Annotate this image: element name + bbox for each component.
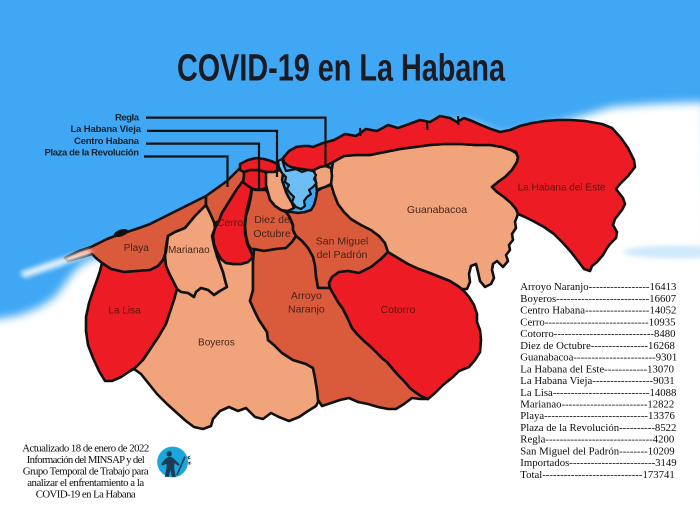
svg-text:Actualizado 18 de enero de 202: Actualizado 18 de enero de 2022 — [22, 443, 149, 455]
svg-text:La Habana del Este: La Habana del Este — [518, 182, 606, 193]
svg-text:Playa: Playa — [124, 243, 149, 254]
svg-text:La Habana Vieja: La Habana Vieja — [71, 124, 142, 135]
svg-text:Regla-------------------------: Regla------------------------------4200 — [520, 434, 674, 446]
svg-text:Boyeros: Boyeros — [198, 338, 235, 349]
svg-text:Naranjo: Naranjo — [288, 304, 325, 316]
svg-text:Diez de: Diez de — [254, 214, 290, 226]
svg-text:Plaza de la Revolución--------: Plaza de la Revolución----------8522 — [520, 422, 676, 434]
svg-text:Cotorro: Cotorro — [380, 304, 415, 316]
svg-text:La Lisa: La Lisa — [108, 306, 141, 317]
svg-text:San Miguel del Padrón--------1: San Miguel del Padrón--------10209 — [520, 445, 674, 457]
svg-text:Cerro-------------------------: Cerro-----------------------------10935 — [520, 316, 675, 328]
svg-text:La Habana del Este------------: La Habana del Este------------13070 — [520, 363, 674, 375]
svg-text:Guanabacoa--------------------: Guanabacoa-----------------------9301 — [520, 352, 677, 364]
svg-text:COVID-19 en La Habana: COVID-19 en La Habana — [177, 48, 506, 90]
svg-text:Centro Habana-----------------: Centro Habana------------------14052 — [520, 305, 676, 317]
svg-text:La Habana Vieja---------------: La Habana Vieja-----------------9031 — [520, 375, 674, 387]
svg-text:Información del MINSAP y del: Información del MINSAP y del — [27, 454, 145, 466]
svg-text:analizar el enfrentamiento a l: analizar el enfrentamiento a la — [27, 477, 144, 489]
svg-text:Diez de Octubre---------------: Diez de Octubre----------------16268 — [520, 340, 675, 352]
svg-text:Playa-------------------------: Playa-----------------------------13376 — [520, 410, 675, 422]
svg-text:Cotorro-----------------------: Cotorro----------------------------8480 — [520, 328, 675, 340]
svg-text:del Padrón: del Padrón — [317, 249, 368, 261]
svg-text:Marianao----------------------: Marianao------------------------12822 — [520, 399, 674, 411]
svg-text:Centro Habana: Centro Habana — [74, 136, 140, 147]
svg-text:Importados--------------------: Importados------------------------3149 — [520, 457, 676, 469]
svg-text:COVID-19 en La Habana: COVID-19 en La Habana — [36, 488, 136, 500]
svg-text:San Miguel: San Miguel — [316, 236, 369, 248]
svg-text:Cerro: Cerro — [217, 217, 243, 229]
svg-text:Marianao: Marianao — [168, 245, 210, 256]
svg-text:Total-------------------------: Total----------------------------173741 — [520, 469, 674, 481]
svg-text:Arroyo Naranjo----------------: Arroyo Naranjo-----------------16413 — [520, 281, 676, 293]
svg-text:Arroyo: Arroyo — [291, 290, 322, 302]
svg-text:Regla: Regla — [115, 113, 140, 124]
svg-text:Boyeros-----------------------: Boyeros--------------------------16607 — [520, 293, 676, 305]
svg-text:Guanabacoa: Guanabacoa — [407, 204, 467, 216]
svg-text:Octubre: Octubre — [253, 228, 291, 240]
svg-text:Plaza de la Revolución: Plaza de la Revolución — [45, 148, 140, 159]
svg-text:La Lisa-----------------------: La Lisa---------------------------14088 — [520, 387, 676, 399]
svg-text:Grupo Temporal de Trabajo para: Grupo Temporal de Trabajo para — [23, 466, 149, 478]
